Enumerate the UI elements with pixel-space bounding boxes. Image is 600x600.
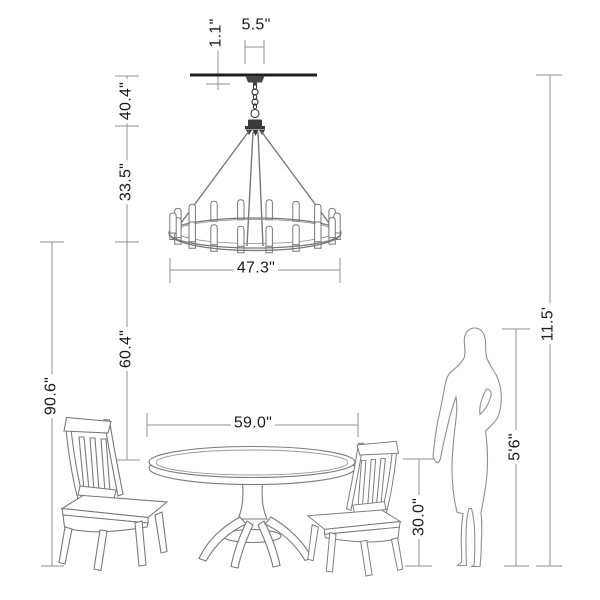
dim-label-fixture-height: 33.5" [119, 160, 136, 204]
dim-label-table-diameter: 59.0" [231, 416, 275, 433]
candle-bulb [189, 222, 195, 242]
candle-bulb [238, 200, 244, 220]
chair-left [59, 418, 167, 571]
dim-label-canopy-height: 1.1" [209, 15, 226, 50]
dim-line-canopy-height [206, 50, 230, 90]
candle-bulb [238, 226, 244, 246]
dim-label-person-height: 5'6" [508, 430, 525, 464]
dining-table [149, 447, 355, 569]
dim-line-left-stack [115, 76, 140, 460]
candle-bulb [315, 222, 321, 242]
candle-bulb [211, 225, 217, 245]
dim-line-canopy-width [245, 40, 264, 64]
dim-label-fixture-diameter: 47.3" [234, 261, 278, 278]
table-pedestal [199, 478, 312, 569]
person-figure [433, 328, 501, 567]
dim-label-ceiling-height: 11.5' [541, 304, 558, 345]
dimension-diagram: 1.1" 5.5" 40.4" 33.5" 47.3" 60.4" 90.6" … [0, 0, 600, 600]
chandelier-chain [251, 84, 259, 117]
candle-bulb [293, 201, 299, 221]
dim-label-ceiling-to-fixture: 40.4" [119, 79, 136, 123]
dim-label-fixture-to-tabletop: 60.4" [119, 327, 136, 371]
candle-bulb [266, 200, 272, 220]
candle-bulb [293, 225, 299, 245]
table-top [149, 447, 355, 485]
dim-label-canopy-width: 5.5" [238, 18, 273, 35]
chandelier-candles-back [175, 200, 336, 229]
candle-bulb [170, 213, 176, 233]
dim-label-tabletop-height: 30.0" [412, 495, 429, 539]
chandelier-rods [178, 131, 332, 246]
chandelier [169, 76, 341, 253]
candle-bulb [211, 201, 217, 221]
candle-bulb [266, 226, 272, 246]
candle-bulb [329, 218, 335, 238]
diagram-drawing [0, 0, 600, 600]
dim-label-fixture-bottom-to-floor: 90.6" [44, 374, 61, 418]
